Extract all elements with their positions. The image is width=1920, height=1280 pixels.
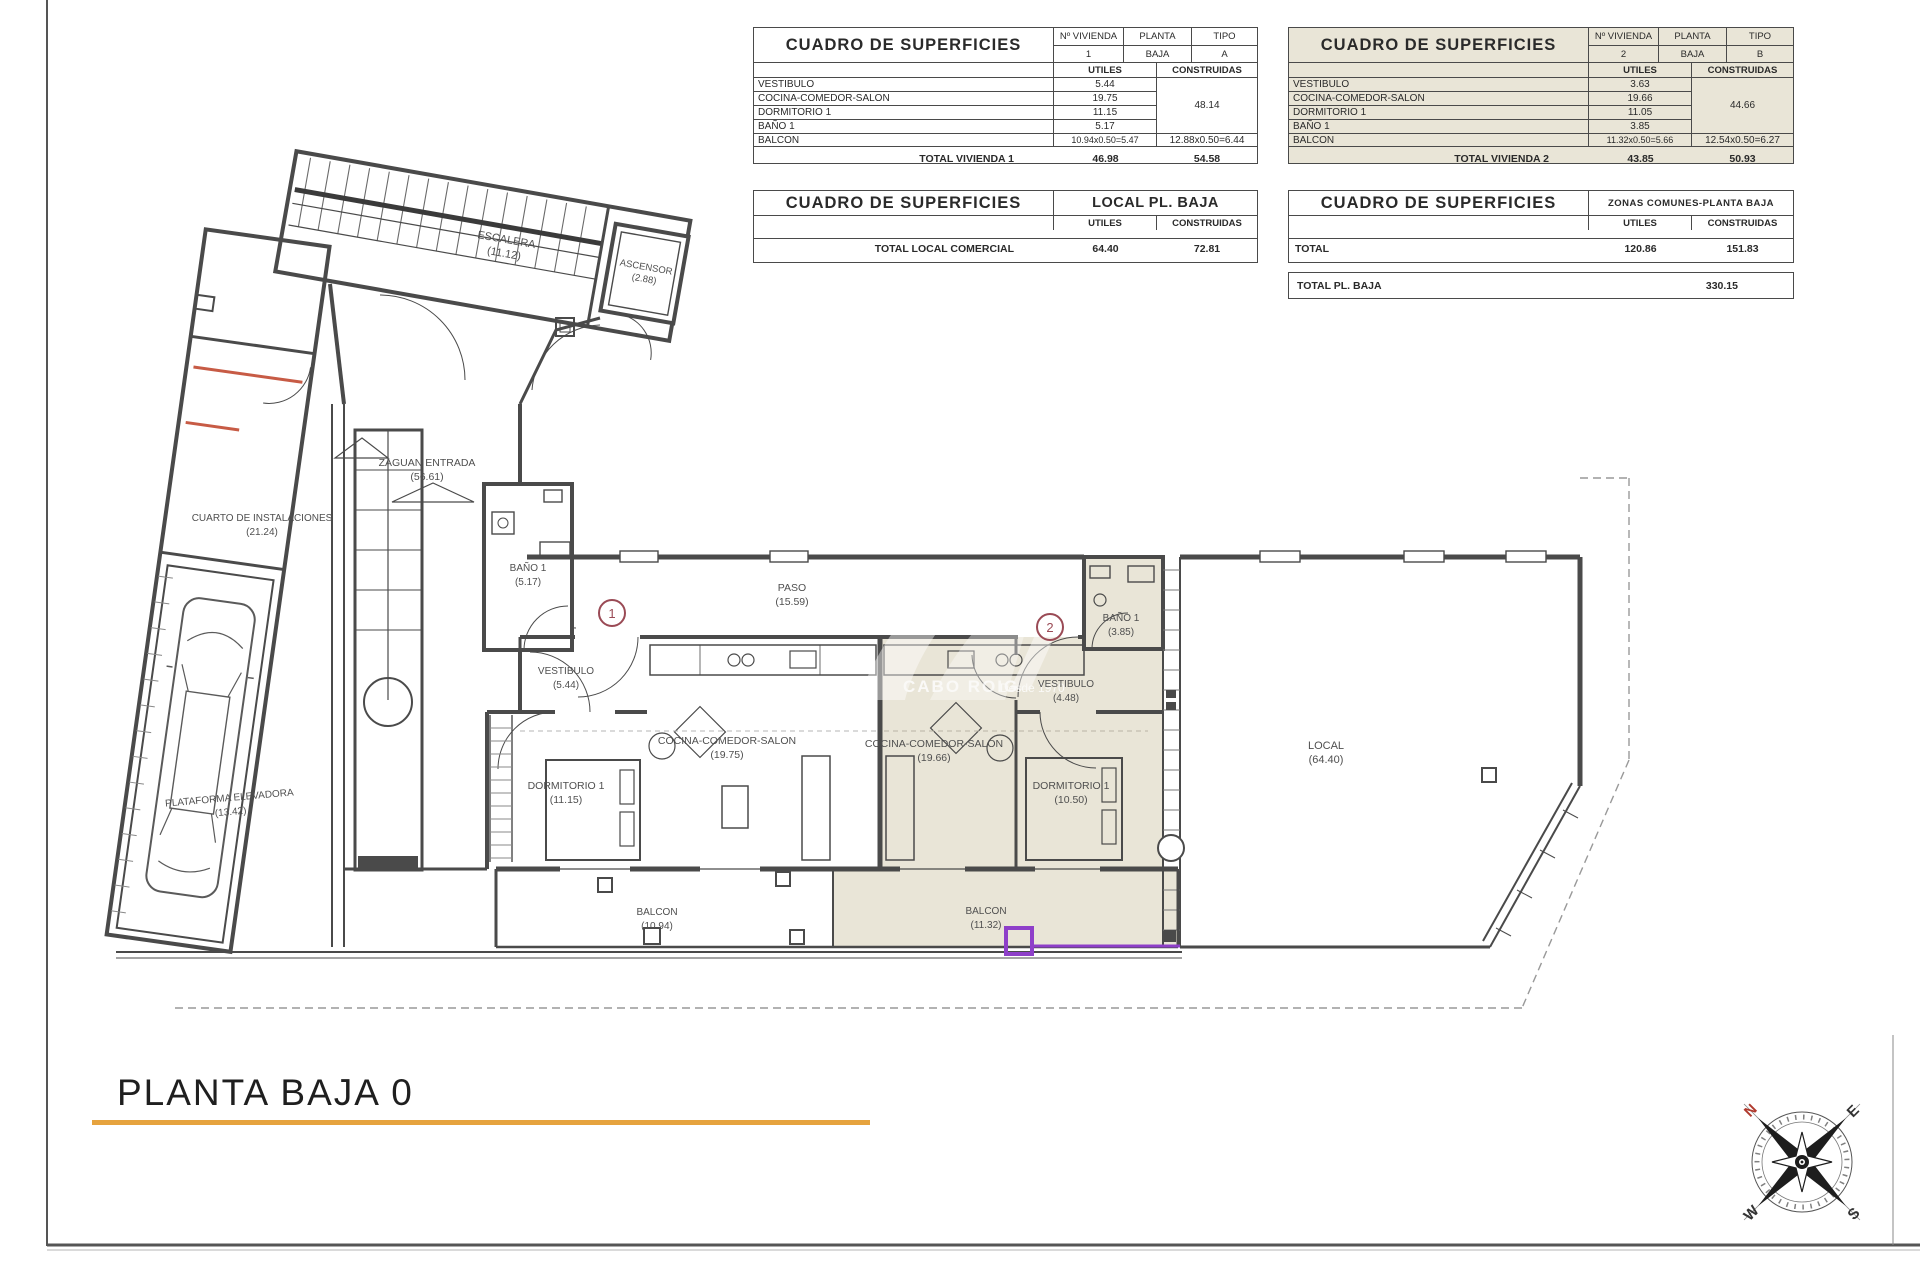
tipo-value: A bbox=[1192, 46, 1257, 63]
room-labels: ESCALERA (11.12) ASCENSOR (2.88) ZAGUAN … bbox=[165, 229, 1344, 932]
room-label-dormitorio-v1: DORMITORIO 1 bbox=[528, 780, 605, 792]
total-utiles: 43.85 bbox=[1589, 150, 1692, 168]
total-utiles: 64.40 bbox=[1054, 239, 1157, 258]
sofa-v1 bbox=[802, 756, 830, 860]
room-label-balcon-v1: BALCON bbox=[636, 907, 677, 918]
col-num-vivienda: Nº VIVIENDA bbox=[1054, 28, 1124, 46]
svg-text:1: 1 bbox=[608, 606, 615, 621]
table-row: VESTIBULO bbox=[754, 77, 1054, 91]
room-label-paso: PASO bbox=[778, 582, 806, 594]
room-label-vestibulo-v2: VESTIBULO bbox=[1038, 679, 1094, 690]
total-label: TOTAL VIVIENDA 1 bbox=[754, 150, 1054, 168]
total-construidas: 72.81 bbox=[1157, 239, 1257, 258]
room-label-cuarto: CUARTO DE INSTALACIONES bbox=[192, 513, 333, 524]
total-planta-bar: TOTAL PL. BAJA 330.15 bbox=[1288, 272, 1794, 299]
compass-west: W bbox=[1740, 1202, 1763, 1225]
svg-text:(10.94): (10.94) bbox=[641, 921, 673, 932]
page-title: PLANTA BAJA 0 bbox=[117, 1072, 414, 1114]
room-label-vestibulo-v1: VESTIBULO bbox=[538, 666, 594, 677]
surface-table-local: CUADRO DE SUPERFICIES LOCAL PL. BAJA UTI… bbox=[753, 190, 1258, 263]
utiles-header: UTILES bbox=[1054, 63, 1157, 77]
svg-text:(56.61): (56.61) bbox=[410, 471, 443, 483]
room-label-bano-v2: BAÑO 1 bbox=[1103, 611, 1140, 624]
table-row: DORMITORIO 1 bbox=[1289, 105, 1589, 119]
svg-text:(5.44): (5.44) bbox=[553, 680, 579, 691]
total-construidas: 54.58 bbox=[1157, 150, 1257, 168]
left-wing bbox=[107, 229, 330, 951]
table-row: BALCON bbox=[1289, 133, 1589, 147]
svg-text:(5.17): (5.17) bbox=[515, 577, 541, 588]
table-row: BALCON bbox=[754, 133, 1054, 147]
table-subtitle: ZONAS COMUNES-PLANTA BAJA bbox=[1589, 191, 1793, 216]
floor-plan-sheet: { "page": { "title": "PLANTA BAJA 0", "c… bbox=[0, 0, 1920, 1280]
construidas-header: CONSTRUIDAS bbox=[1157, 63, 1257, 77]
total-label: TOTAL VIVIENDA 2 bbox=[1289, 150, 1589, 168]
planta-value: BAJA bbox=[1124, 46, 1192, 63]
table-row: BAÑO 1 bbox=[1289, 119, 1589, 133]
table-row: DORMITORIO 1 bbox=[754, 105, 1054, 119]
room-label-cocina-v1: COCINA-COMEDOR-SALON bbox=[658, 735, 796, 747]
local-room bbox=[1180, 551, 1580, 947]
construidas-merged: 44.66 bbox=[1692, 77, 1793, 133]
room-label-zaguan: ZAGUAN ENTRADA bbox=[379, 457, 476, 469]
room-label-cocina-v2: COCINA-COMEDOR-SALON bbox=[865, 738, 1003, 750]
svg-text:(10.50): (10.50) bbox=[1054, 794, 1087, 806]
svg-text:(4.48): (4.48) bbox=[1053, 693, 1079, 704]
surface-table-comunes: CUADRO DE SUPERFICIES ZONAS COMUNES-PLAN… bbox=[1288, 190, 1794, 263]
svg-text:(11.15): (11.15) bbox=[550, 794, 583, 806]
svg-text:2: 2 bbox=[1046, 620, 1053, 635]
total-utiles: 46.98 bbox=[1054, 150, 1157, 168]
compass-rose: N E S W bbox=[1686, 1046, 1918, 1278]
total-label: TOTAL LOCAL COMERCIAL bbox=[754, 239, 1054, 258]
orange-accent-2 bbox=[186, 422, 239, 430]
table-row: COCINA-COMEDOR-SALON bbox=[754, 91, 1054, 105]
svg-text:(19.66): (19.66) bbox=[917, 752, 950, 764]
svg-text:(19.75): (19.75) bbox=[710, 749, 743, 761]
room-label-dormitorio-v2: DORMITORIO 1 bbox=[1033, 780, 1110, 792]
room-label-plataforma: PLATAFORMA ELEVADORA (13.42) bbox=[165, 787, 296, 823]
table-title: CUADRO DE SUPERFICIES bbox=[1289, 28, 1589, 63]
table-row: BAÑO 1 bbox=[754, 119, 1054, 133]
svg-text:(11.32): (11.32) bbox=[971, 920, 1002, 931]
compass-south: S bbox=[1844, 1204, 1863, 1223]
room-label-local: LOCAL bbox=[1308, 740, 1344, 752]
orange-accent-1 bbox=[193, 367, 302, 382]
room-label-bano-v1: BAÑO 1 bbox=[510, 561, 547, 574]
total-construidas: 151.83 bbox=[1692, 239, 1793, 258]
col-tipo: TIPO bbox=[1192, 28, 1257, 46]
total-planta-value: 330.15 bbox=[1706, 280, 1793, 292]
svg-text:(64.40): (64.40) bbox=[1309, 754, 1344, 766]
total-planta-label: TOTAL PL. BAJA bbox=[1289, 280, 1382, 292]
svg-text:(3.85): (3.85) bbox=[1108, 627, 1134, 638]
room-label-balcon-v2: BALCON bbox=[965, 906, 1006, 917]
table-title: CUADRO DE SUPERFICIES bbox=[754, 28, 1054, 63]
total-label: TOTAL bbox=[1289, 239, 1589, 258]
tipo-value: B bbox=[1727, 46, 1793, 63]
planta-value: BAJA bbox=[1659, 46, 1727, 63]
surface-table-vivienda1: CUADRO DE SUPERFICIES Nº VIVIENDA PLANTA… bbox=[753, 27, 1258, 164]
table-subtitle: LOCAL PL. BAJA bbox=[1054, 191, 1257, 216]
table-row: VESTIBULO bbox=[1289, 77, 1589, 91]
num-value: 2 bbox=[1589, 46, 1659, 63]
svg-text:(21.24): (21.24) bbox=[246, 527, 278, 538]
total-construidas: 50.93 bbox=[1692, 150, 1793, 168]
total-utiles: 120.86 bbox=[1589, 239, 1692, 258]
table-row: COCINA-COMEDOR-SALON bbox=[1289, 91, 1589, 105]
title-underline bbox=[92, 1120, 870, 1125]
svg-text:(15.59): (15.59) bbox=[775, 596, 808, 608]
compass-east: E bbox=[1844, 1102, 1863, 1121]
svg-text:(13.42): (13.42) bbox=[214, 806, 247, 820]
car-lift-platform bbox=[117, 565, 274, 942]
col-planta: PLANTA bbox=[1124, 28, 1192, 46]
bed-v1 bbox=[546, 760, 640, 860]
num-value: 1 bbox=[1054, 46, 1124, 63]
surface-table-vivienda2: CUADRO DE SUPERFICIES Nº VIVIENDA PLANTA… bbox=[1288, 27, 1794, 164]
construidas-merged: 48.14 bbox=[1157, 77, 1257, 133]
